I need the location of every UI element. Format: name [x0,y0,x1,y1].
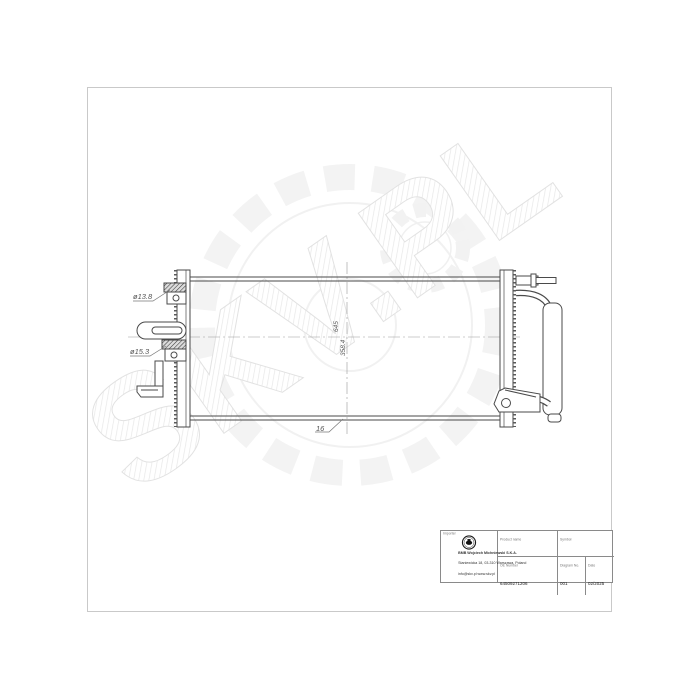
skv-stamp-logo-icon [457,535,481,550]
dim-port-top-label: ø13.8 [133,292,153,301]
producer-company-line: BMB Wojciech Michniewski S.K.A. [458,551,481,555]
diagram-no-label: Diagram No. [560,564,579,567]
inlet-port-top [164,283,186,304]
producer-address-block: BMB Wojciech Michniewski S.K.A. Staniewi… [441,551,498,582]
drawing-sheet: SKV.PL [0,0,700,700]
date-value: 02/2025 [588,582,604,587]
diagram-no-cell: Diagram No. 001 [558,557,586,595]
date-cell: Date 02/2025 [586,557,614,595]
title-block-row-2: OE Number 64509271206 Diagram No. 001 Da… [498,557,614,595]
symbol-label: Symbol [560,538,571,541]
condenser-technical-drawing: SKV.PL [0,0,700,700]
product-name-cell: Product name AIR CONDITIONING CONDENSER [498,531,558,556]
receiver-drier [543,303,562,415]
title-block: Importer BMB Wojciech Michniewski S.K.A.… [440,530,613,583]
oe-number-value: 64509271206 [500,582,528,587]
producer-label: Importer [443,532,456,535]
dim-core-height-label: 358.4 [340,339,347,356]
oe-number-cell: OE Number 64509271206 [498,557,558,595]
dim-core-width-label: 645 [333,321,340,332]
title-block-producer-cell: Importer BMB Wojciech Michniewski S.K.A.… [441,531,498,582]
inlet-port-bottom [162,340,186,361]
producer-contact-line: info@skv.pl www.skv.pl [458,572,481,576]
pipe-stub-left [137,322,186,339]
dim-port-bottom-label: ø15.3 [130,347,150,356]
producer-address-line: Staniewicka 18, 03-310 Warszawa, Poland [458,561,481,565]
date-label: Date [588,564,595,567]
product-name-label: Product name [500,538,521,541]
outlet-pipes-top [516,274,556,287]
title-block-row-1: Product name AIR CONDITIONING CONDENSER … [498,531,614,557]
drier-inlet-pipe [516,293,549,307]
symbol-cell: Symbol 86SKV287 [558,531,614,556]
title-block-fields: Product name AIR CONDITIONING CONDENSER … [498,531,614,582]
diagram-no-value: 001 [560,582,568,587]
oe-number-label: OE Number [500,564,518,567]
